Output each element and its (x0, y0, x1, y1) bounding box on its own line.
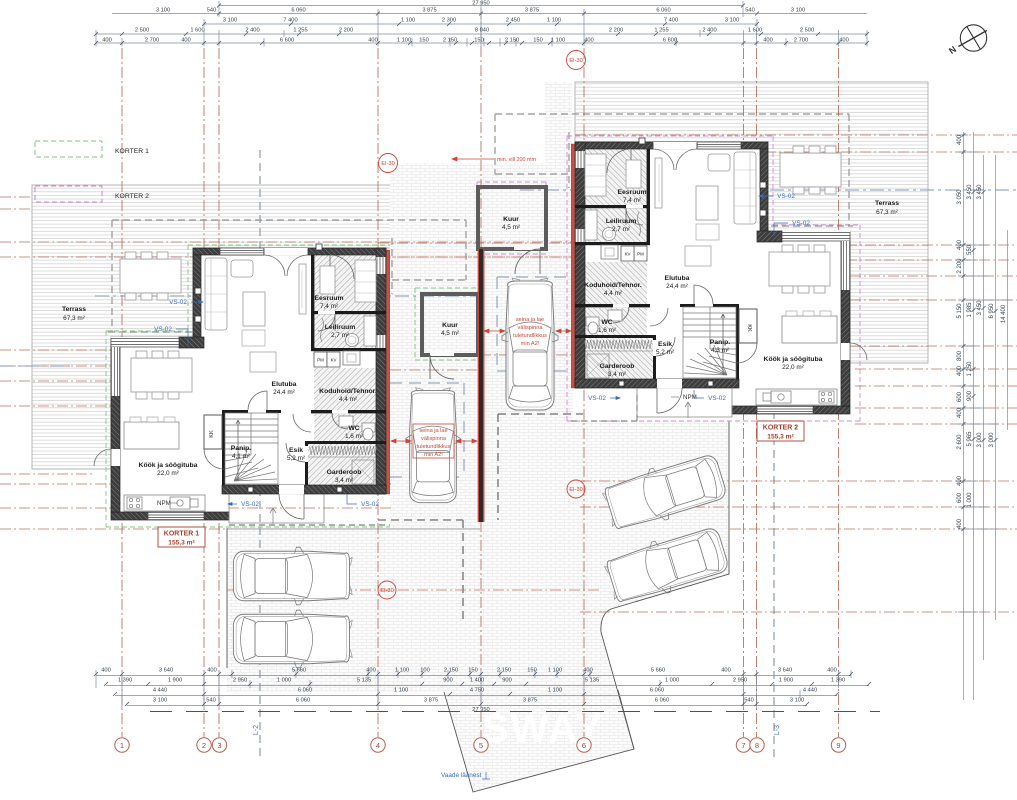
svg-text:2 500: 2 500 (135, 28, 149, 34)
svg-text:540: 540 (745, 8, 755, 14)
svg-text:6 060: 6 060 (656, 8, 670, 14)
svg-text:2 950: 2 950 (233, 678, 247, 684)
svg-text:Esik: Esik (658, 341, 672, 348)
svg-text:3 100: 3 100 (790, 698, 804, 704)
svg-text:4,5 m²: 4,5 m² (441, 330, 459, 337)
svg-text:VS-02: VS-02 (361, 501, 379, 508)
svg-text:3 100: 3 100 (223, 18, 237, 24)
svg-text:4,5 m²: 4,5 m² (502, 224, 520, 231)
svg-text:150: 150 (468, 668, 478, 674)
svg-text:Panip.: Panip. (710, 339, 731, 346)
svg-text:8: 8 (755, 741, 759, 750)
svg-text:1 900: 1 900 (779, 678, 793, 684)
svg-text:KORTER 1: KORTER 1 (164, 531, 200, 538)
svg-text:seina ja lae: seina ja lae (516, 317, 544, 323)
svg-text:3 000: 3 000 (989, 432, 995, 448)
svg-text:150: 150 (533, 38, 543, 44)
svg-text:4,4 m²: 4,4 m² (604, 290, 622, 297)
svg-text:PM: PM (637, 252, 644, 257)
svg-text:2 200: 2 200 (339, 28, 353, 34)
svg-text:6 600: 6 600 (280, 38, 294, 44)
svg-text:3 100: 3 100 (156, 8, 170, 14)
svg-text:2 150: 2 150 (444, 668, 458, 674)
svg-text:100: 100 (420, 668, 430, 674)
svg-text:NPM: NPM (683, 394, 697, 401)
svg-text:2 300: 2 300 (442, 18, 456, 24)
svg-text:3 100: 3 100 (725, 18, 739, 24)
svg-text:6: 6 (582, 741, 586, 750)
svg-text:Garderoob: Garderoob (600, 363, 635, 370)
svg-text:5 660: 5 660 (651, 668, 665, 674)
svg-text:3,4 m²: 3,4 m² (335, 477, 353, 484)
svg-text:1: 1 (120, 741, 124, 750)
svg-text:900: 900 (967, 390, 973, 401)
svg-text:400: 400 (957, 407, 963, 418)
svg-text:Köök ja söögituba: Köök ja söögituba (764, 356, 823, 363)
svg-text:3,4 m²: 3,4 m² (608, 371, 626, 378)
svg-text:6 060: 6 060 (655, 698, 669, 704)
svg-text:600: 600 (957, 391, 963, 402)
svg-text:3 450: 3 450 (977, 300, 983, 316)
svg-text:KK: KK (209, 430, 215, 438)
svg-text:5 135: 5 135 (357, 678, 371, 684)
svg-text:seina ja lae: seina ja lae (419, 428, 447, 434)
svg-text:400: 400 (102, 38, 112, 44)
svg-text:WC: WC (601, 319, 612, 326)
svg-text:Garderoob: Garderoob (327, 469, 362, 476)
svg-text:150: 150 (527, 668, 537, 674)
svg-text:7 400: 7 400 (283, 18, 297, 24)
svg-text:3 450: 3 450 (977, 184, 983, 200)
svg-text:1 100: 1 100 (397, 38, 411, 44)
svg-text:NPM: NPM (157, 500, 171, 507)
svg-text:KORTER 2: KORTER 2 (763, 425, 799, 432)
svg-text:67,3 m²: 67,3 m² (63, 315, 85, 322)
svg-text:2,7 m²: 2,7 m² (331, 332, 349, 339)
svg-text:1 100: 1 100 (401, 18, 415, 24)
svg-text:VS-02: VS-02 (169, 299, 187, 306)
svg-text:Leiliruum: Leiliruum (606, 218, 637, 225)
svg-text:400: 400 (957, 134, 963, 145)
svg-text:2 150: 2 150 (443, 38, 457, 44)
svg-text:7,4 m²: 7,4 m² (623, 197, 641, 204)
svg-text:3: 3 (217, 741, 221, 750)
svg-text:540: 540 (744, 698, 754, 704)
svg-text:400: 400 (101, 668, 111, 674)
svg-text:400: 400 (957, 475, 963, 486)
svg-text:400: 400 (207, 668, 217, 674)
svg-text:1 255: 1 255 (293, 28, 307, 34)
svg-text:2 400: 2 400 (702, 28, 716, 34)
svg-text:VS-02: VS-02 (154, 326, 172, 333)
svg-text:4,3 m²: 4,3 m² (711, 347, 729, 354)
svg-text:5 150: 5 150 (957, 303, 963, 319)
svg-text:Koduhoid/Tehnor.: Koduhoid/Tehnor. (319, 388, 377, 395)
svg-text:27 950: 27 950 (472, 1, 489, 7)
svg-text:6 060: 6 060 (291, 8, 305, 14)
svg-text:1 100: 1 100 (548, 668, 562, 674)
svg-text:Koduhoid/Tehnor.: Koduhoid/Tehnor. (584, 282, 642, 289)
svg-text:400: 400 (763, 38, 773, 44)
svg-text:2 600: 2 600 (957, 434, 963, 450)
svg-text:2 150: 2 150 (497, 668, 511, 674)
svg-text:400: 400 (957, 518, 963, 529)
svg-text:KORTER 1: KORTER 1 (115, 148, 149, 155)
svg-text:EI-30: EI-30 (569, 487, 582, 493)
svg-text:4 440: 4 440 (153, 688, 167, 694)
svg-text:Eesruum: Eesruum (314, 295, 343, 302)
svg-text:Köök ja söögituba: Köök ja söögituba (139, 462, 198, 469)
svg-text:2 200: 2 200 (609, 28, 623, 34)
svg-text:2 700: 2 700 (794, 38, 808, 44)
svg-text:EI-30: EI-30 (380, 588, 393, 594)
svg-text:400: 400 (721, 668, 731, 674)
svg-text:min A2!: min A2! (521, 341, 540, 347)
svg-text:EI-30: EI-30 (569, 58, 582, 64)
svg-text:600: 600 (957, 492, 963, 503)
svg-text:Elutuba: Elutuba (272, 381, 297, 388)
svg-text:1 390: 1 390 (831, 678, 845, 684)
svg-text:540: 540 (207, 8, 217, 14)
svg-text:400: 400 (957, 239, 963, 250)
svg-text:400: 400 (839, 38, 849, 44)
svg-text:1 100: 1 100 (551, 38, 565, 44)
svg-text:L-2: L-2 (253, 725, 260, 735)
svg-text:5 135: 5 135 (585, 678, 599, 684)
svg-text:2 150: 2 150 (505, 38, 519, 44)
svg-text:Leiliruum: Leiliruum (325, 324, 356, 331)
svg-text:VS-02: VS-02 (588, 395, 606, 402)
svg-text:5: 5 (479, 741, 483, 750)
svg-text:1 000: 1 000 (665, 678, 679, 684)
svg-text:400: 400 (583, 668, 593, 674)
svg-text:400: 400 (584, 38, 594, 44)
svg-text:3 050: 3 050 (957, 189, 963, 205)
svg-text:min. vill 200 mm: min. vill 200 mm (497, 157, 536, 163)
svg-text:3 640: 3 640 (159, 668, 173, 674)
svg-text:PM: PM (317, 358, 324, 363)
svg-text:1 600: 1 600 (190, 28, 204, 34)
svg-text:800: 800 (957, 350, 963, 361)
svg-text:5 965: 5 965 (967, 431, 973, 447)
svg-text:4: 4 (376, 741, 380, 750)
svg-text:24,4 m²: 24,4 m² (273, 389, 295, 396)
svg-text:3 640: 3 640 (778, 668, 792, 674)
svg-text:VS-02: VS-02 (792, 220, 810, 227)
svg-text:Panip.: Panip. (231, 445, 252, 452)
svg-text:1 000: 1 000 (967, 492, 973, 508)
svg-text:1 400: 1 400 (470, 678, 484, 684)
svg-text:14 400: 14 400 (1001, 304, 1007, 323)
svg-text:22,0 m²: 22,0 m² (782, 364, 804, 371)
svg-text:1 100: 1 100 (548, 688, 562, 694)
svg-text:1 100: 1 100 (395, 668, 409, 674)
svg-text:9: 9 (836, 741, 840, 750)
svg-text:2 950: 2 950 (733, 678, 747, 684)
svg-text:Kuur: Kuur (503, 216, 519, 223)
svg-text:2 400: 2 400 (245, 28, 259, 34)
svg-text:1 100: 1 100 (394, 688, 408, 694)
svg-text:4,1 m²: 4,1 m² (232, 453, 250, 460)
svg-text:tuletundlikkus: tuletundlikkus (417, 444, 451, 450)
svg-text:Eesruum: Eesruum (617, 189, 646, 196)
svg-text:EI-30: EI-30 (381, 161, 394, 167)
svg-text:400: 400 (181, 38, 191, 44)
svg-text:3 875: 3 875 (424, 698, 438, 704)
svg-text:1 250: 1 250 (967, 361, 973, 377)
svg-text:L-3: L-3 (774, 725, 781, 735)
svg-text:2: 2 (202, 741, 206, 750)
svg-text:67,3 m²: 67,3 m² (876, 209, 898, 216)
svg-text:Esik: Esik (289, 447, 303, 454)
svg-text:2 450: 2 450 (506, 18, 520, 24)
svg-text:400: 400 (827, 668, 837, 674)
svg-text:1 390: 1 390 (118, 678, 132, 684)
svg-text:900: 900 (443, 678, 453, 684)
svg-text:6 060: 6 060 (296, 698, 310, 704)
svg-text:KK: KK (746, 324, 752, 332)
svg-text:1,6 m²: 1,6 m² (598, 327, 616, 334)
svg-text:3 100: 3 100 (153, 698, 167, 704)
svg-text:välispinna: välispinna (518, 325, 544, 331)
svg-text:4,4 m²: 4,4 m² (339, 396, 357, 403)
svg-text:150: 150 (419, 38, 429, 44)
svg-text:3 100: 3 100 (791, 8, 805, 14)
svg-text:150: 150 (474, 38, 484, 44)
svg-text:2 700: 2 700 (145, 38, 159, 44)
svg-text:tuletundlikkus: tuletundlikkus (513, 333, 547, 339)
svg-text:6 950: 6 950 (989, 303, 995, 319)
svg-text:Terrass: Terrass (875, 200, 899, 207)
svg-text:155,3 m²: 155,3 m² (767, 434, 794, 441)
svg-text:3 450: 3 450 (967, 184, 973, 200)
svg-text:1 900: 1 900 (168, 678, 182, 684)
svg-text:400: 400 (957, 365, 963, 376)
svg-text:3 000: 3 000 (977, 432, 983, 448)
svg-text:24,4 m²: 24,4 m² (666, 283, 688, 290)
svg-text:KV: KV (625, 252, 631, 257)
svg-text:2 500: 2 500 (800, 28, 814, 34)
svg-text:KV: KV (331, 358, 337, 363)
svg-text:VS-02: VS-02 (708, 395, 726, 402)
svg-text:3 875: 3 875 (525, 8, 539, 14)
svg-text:Kuur: Kuur (442, 322, 458, 329)
svg-text:3 875: 3 875 (523, 698, 537, 704)
svg-text:3 875: 3 875 (422, 8, 436, 14)
svg-text:2,7 m²: 2,7 m² (612, 226, 630, 233)
svg-text:27 950: 27 950 (472, 707, 489, 713)
svg-text:155,3 m²: 155,3 m² (168, 540, 195, 547)
svg-text:22,0 m²: 22,0 m² (157, 470, 179, 477)
svg-text:1 600: 1 600 (748, 28, 762, 34)
svg-text:6 600: 6 600 (663, 38, 677, 44)
svg-text:WC: WC (348, 425, 359, 432)
svg-text:400: 400 (366, 668, 376, 674)
svg-text:1 000: 1 000 (277, 678, 291, 684)
svg-text:1,6 m²: 1,6 m² (345, 433, 363, 440)
svg-text:min A2!: min A2! (424, 452, 443, 458)
svg-text:VS-02: VS-02 (777, 193, 795, 200)
svg-text:7: 7 (741, 741, 745, 750)
svg-text:1 100: 1 100 (547, 18, 561, 24)
svg-text:900: 900 (502, 678, 512, 684)
svg-text:550: 550 (967, 244, 973, 255)
svg-text:7 400: 7 400 (664, 18, 678, 24)
svg-text:7,4 m²: 7,4 m² (320, 303, 338, 310)
svg-text:5,2 m²: 5,2 m² (287, 455, 305, 462)
svg-text:8 040: 8 040 (475, 28, 489, 34)
svg-text:540: 540 (206, 698, 216, 704)
svg-text:Vaade läänest: Vaade läänest (441, 772, 482, 779)
svg-text:Terrass: Terrass (62, 306, 86, 313)
svg-text:2 200: 2 200 (957, 258, 963, 274)
svg-text:Elutuba: Elutuba (665, 275, 690, 282)
svg-text:VS-02: VS-02 (241, 501, 259, 508)
svg-text:400: 400 (368, 38, 378, 44)
svg-text:1 985: 1 985 (967, 302, 973, 318)
svg-text:4 750: 4 750 (470, 688, 484, 694)
svg-text:välispinna: välispinna (421, 436, 447, 442)
svg-text:6 060: 6 060 (298, 688, 312, 694)
svg-text:4 440: 4 440 (803, 688, 817, 694)
svg-text:6 060: 6 060 (650, 688, 664, 694)
svg-text:5,2 m²: 5,2 m² (656, 349, 674, 356)
svg-text:1 255: 1 255 (654, 28, 668, 34)
svg-text:KORTER 2: KORTER 2 (115, 193, 149, 200)
svg-text:5 660: 5 660 (292, 668, 306, 674)
